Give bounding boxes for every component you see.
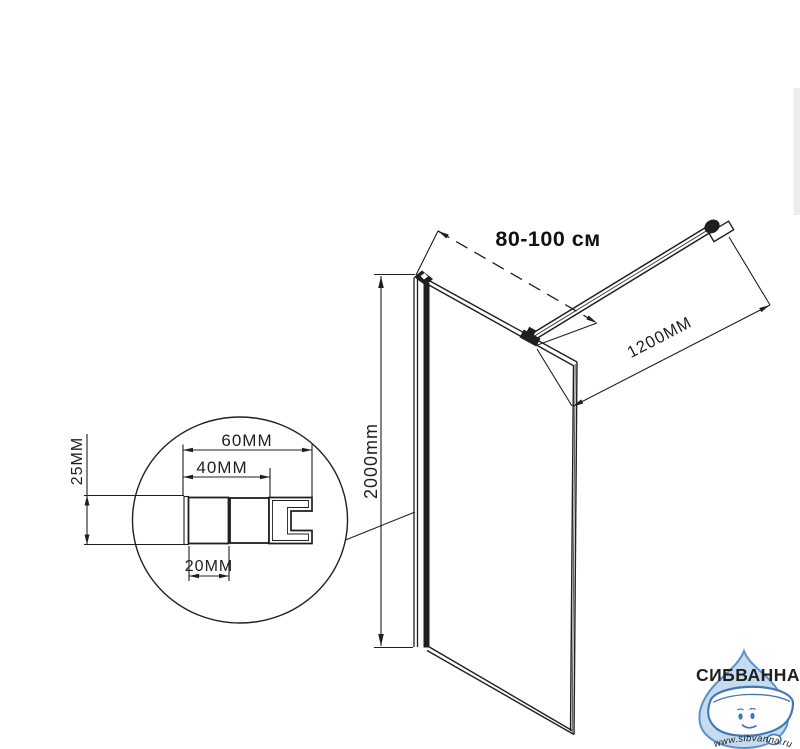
dim-40mm-label: 40MM — [196, 458, 247, 477]
glass-panel — [427, 281, 577, 735]
technical-drawing-page: 80-100 см 2000mm 1200MM — [0, 0, 800, 749]
dim-25mm: 25MM — [69, 434, 184, 545]
dim-60mm-label: 60MM — [221, 431, 272, 450]
dim-panel-width: 80-100 см — [416, 227, 601, 345]
dim-bar-length: 1200MM — [537, 237, 770, 407]
eye-right — [750, 713, 754, 719]
panel-height-label: 2000mm — [361, 423, 381, 499]
dim-40mm: 40MM — [183, 458, 270, 497]
adjustment-box — [230, 498, 269, 543]
wall-profile — [414, 271, 433, 648]
dim-25mm-label: 25MM — [69, 437, 86, 485]
panel-width-label: 80-100 см — [495, 227, 600, 251]
glass-channel — [269, 498, 312, 544]
dim-20mm-label: 20MM — [185, 558, 233, 575]
profile-front-face — [424, 283, 430, 648]
eye-left — [738, 713, 742, 719]
bar-length-label: 1200MM — [624, 313, 695, 361]
dim-20mm: 20MM — [185, 546, 233, 581]
detail-leader-line — [346, 512, 416, 540]
brand-name: СИБВАННА — [696, 665, 800, 685]
main-view: 80-100 см 2000mm 1200MM — [361, 217, 770, 735]
shower-panel-diagram: 80-100 см 2000mm 1200MM — [0, 0, 800, 749]
wall-bracket — [702, 217, 734, 242]
profile-cross-section — [184, 497, 312, 545]
watermark-logo: СИБВАННА www.sibvanna.ru — [696, 651, 800, 749]
edge-artifact — [794, 88, 800, 215]
dim-panel-height: 2000mm — [361, 275, 415, 648]
wall-profile-box — [189, 498, 229, 544]
